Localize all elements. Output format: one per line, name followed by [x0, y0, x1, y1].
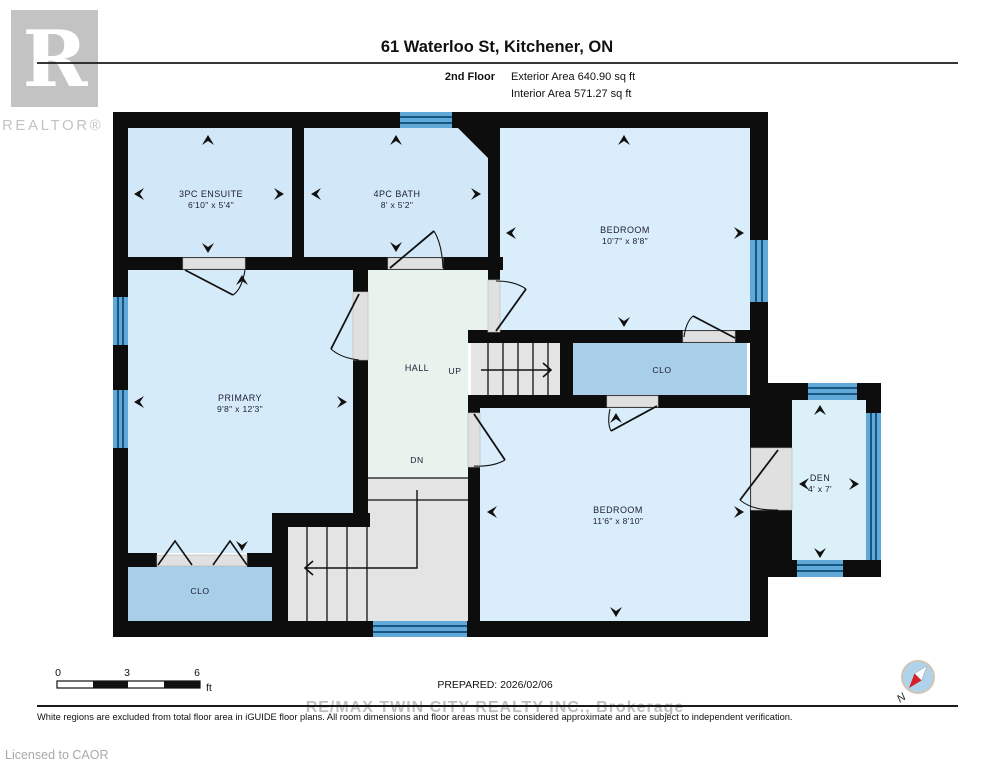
sill-closet-middle [683, 331, 735, 342]
label-primary-dims: 9'8" x 12'3" [217, 404, 263, 414]
window-primary-left-lower [113, 390, 128, 448]
label-bedroom-bottom-dims: 11'6" x 8'10" [593, 516, 643, 526]
scale-unit: ft [206, 682, 212, 694]
scale-bar-seg1 [93, 681, 128, 688]
interior-area: Interior Area 571.27 sq ft [511, 88, 631, 100]
stairs-up [471, 343, 560, 395]
scale-tick-6: 6 [194, 667, 200, 679]
floor-label: 2nd Floor [445, 71, 496, 83]
realtor-wordmark: REALTOR® [2, 117, 103, 134]
window-primary-left-upper [113, 297, 128, 345]
label-ensuite-dims: 6'10" x 5'4" [188, 200, 234, 210]
label-hall: HALL [405, 363, 429, 373]
scale-bar: 0 3 6 ft [55, 667, 212, 694]
sill-closet-primary [157, 555, 247, 566]
scale-bar-seg2 [164, 681, 200, 688]
floorplan-page: R REALTOR® 61 Waterloo St, Kitchener, ON… [0, 0, 995, 768]
exterior-area: Exterior Area 640.90 sq ft [511, 71, 635, 83]
header: 61 Waterloo St, Kitchener, ON 2nd Floor … [37, 38, 958, 100]
sill-bedroom-top [488, 280, 500, 332]
window-den-right [866, 413, 881, 560]
label-ensuite: 3PC ENSUITE [179, 189, 243, 199]
label-bedroom-top: BEDROOM [600, 225, 650, 235]
label-bath: 4PC BATH [374, 189, 421, 199]
scale-tick-3: 3 [124, 667, 130, 679]
compass-north-label: N [895, 691, 908, 705]
disclaimer-text: White regions are excluded from total fl… [37, 712, 793, 722]
label-den-dims: 4' x 7' [808, 484, 832, 494]
window-bedroom-top-right [750, 240, 768, 302]
sill-ensuite-primary [183, 258, 245, 269]
label-bedroom-top-dims: 10'7" x 8'8" [602, 236, 648, 246]
window-den-bottom [797, 560, 843, 577]
label-stairs-up: UP [449, 366, 462, 376]
compass: N [895, 658, 937, 705]
page-title: 61 Waterloo St, Kitchener, ON [381, 38, 613, 56]
window-stairs-bottom [373, 621, 467, 637]
stairs-up-floor [471, 343, 560, 395]
label-primary: PRIMARY [218, 393, 262, 403]
label-bath-dims: 8' x 5'2" [381, 200, 413, 210]
floorplan-drawing: R REALTOR® 61 Waterloo St, Kitchener, ON… [0, 0, 995, 768]
label-den: DEN [810, 473, 830, 483]
footer: 0 3 6 ft PREPARED: 2026/02/06 RE/MAX TWI… [5, 658, 958, 762]
licensed-text: Licensed to CAOR [5, 748, 109, 762]
sill-bedroom-bottom-top [607, 396, 658, 407]
scale-tick-0: 0 [55, 667, 61, 679]
realtor-logo: R REALTOR® [2, 10, 103, 134]
label-bedroom-bottom: BEDROOM [593, 505, 643, 515]
realtor-logo-letter: R [23, 14, 89, 105]
prepared-date: PREPARED: 2026/02/06 [437, 679, 553, 691]
label-closet-middle: CLO [652, 365, 671, 375]
label-stairs-down: DN [410, 455, 423, 465]
label-closet-primary: CLO [190, 586, 209, 596]
window-den-top [808, 383, 857, 400]
window-bath-top [400, 112, 452, 128]
stairs-down-floor [288, 527, 468, 621]
